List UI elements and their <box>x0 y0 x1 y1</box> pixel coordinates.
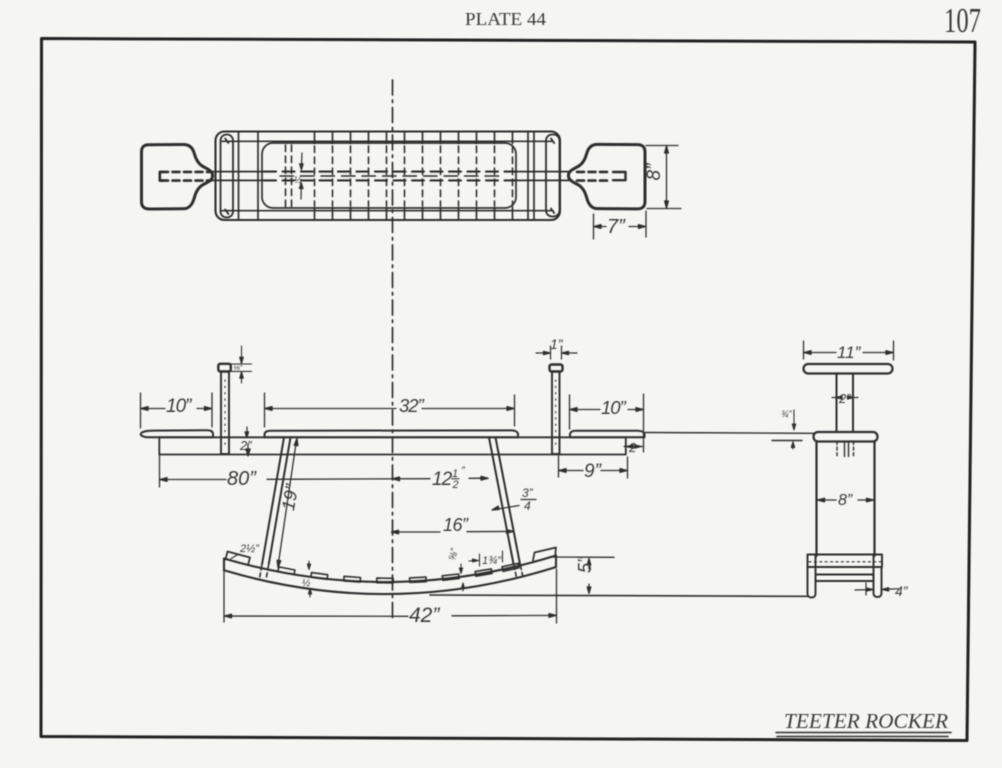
svg-text:5”: 5” <box>575 556 595 573</box>
svg-text:2”: 2” <box>838 391 851 406</box>
svg-text:80”: 80” <box>227 468 257 490</box>
svg-text:32”: 32” <box>399 395 425 416</box>
svg-text:⅝”: ⅝” <box>447 547 461 562</box>
svg-text:½: ½ <box>302 578 311 589</box>
svg-text:10”: 10” <box>601 397 627 418</box>
svg-text:”: ” <box>461 465 466 477</box>
svg-text:16”: 16” <box>443 515 469 535</box>
svg-text:2”: 2” <box>239 438 252 453</box>
svg-text:¾”: ¾” <box>781 409 793 419</box>
svg-text:12: 12 <box>432 469 453 490</box>
svg-text:10”: 10” <box>166 396 193 417</box>
svg-text:42”: 42” <box>409 604 440 627</box>
svg-text:7”: 7” <box>607 216 626 238</box>
svg-text:PLATE 44: PLATE 44 <box>465 9 546 29</box>
svg-text:107: 107 <box>944 1 981 40</box>
svg-text:4”: 4” <box>895 583 909 599</box>
svg-text:4: 4 <box>524 499 531 513</box>
svg-text:1”: 1” <box>550 336 564 352</box>
svg-text:3”: 3” <box>522 486 534 500</box>
svg-text:1¾”: 1¾” <box>482 555 502 567</box>
svg-text:8”: 8” <box>838 492 853 509</box>
svg-text:11”: 11” <box>837 343 862 362</box>
svg-text:TEETER ROCKER: TEETER ROCKER <box>784 709 948 733</box>
svg-text:19”: 19” <box>278 482 302 512</box>
svg-text:9”: 9” <box>584 461 603 482</box>
svg-text:½: ½ <box>294 175 303 186</box>
svg-text:2: 2 <box>452 479 459 491</box>
svg-text:2½”: 2½” <box>239 543 260 555</box>
svg-text:2: 2 <box>628 440 637 455</box>
svg-text:⅛”: ⅛” <box>234 363 243 372</box>
svg-text:8”: 8” <box>644 162 665 181</box>
